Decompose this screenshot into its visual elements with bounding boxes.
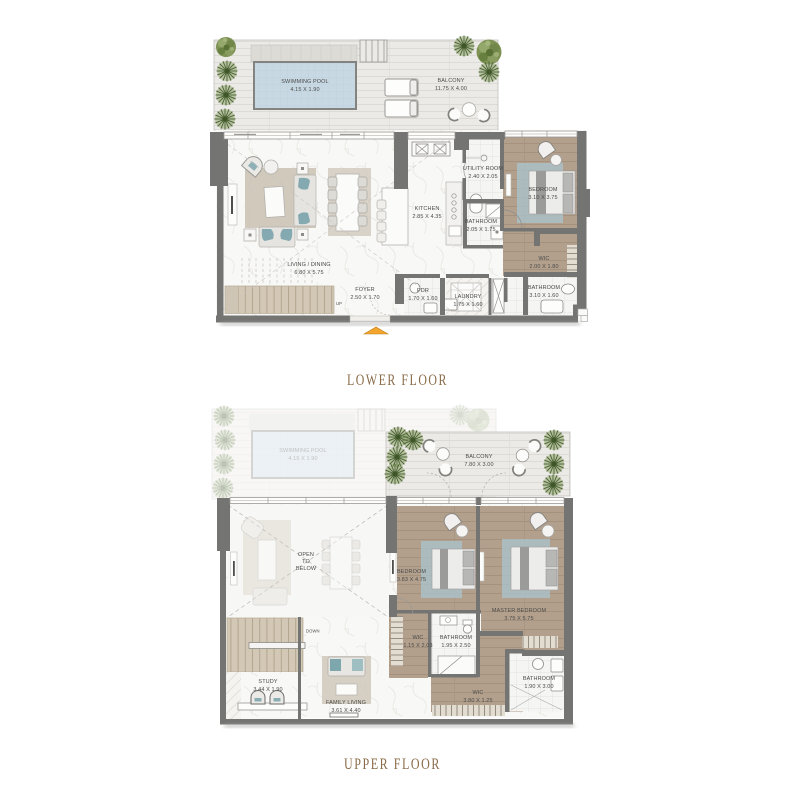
svg-text:2.40 X 2.05: 2.40 X 2.05: [468, 174, 497, 180]
svg-text:LOWER FLOOR: LOWER FLOOR: [347, 372, 448, 389]
svg-text:WIC: WIC: [413, 635, 424, 641]
svg-text:2.50 X 1.70: 2.50 X 1.70: [350, 295, 379, 301]
svg-text:BELOW: BELOW: [296, 566, 317, 572]
svg-text:11.75 X 4.00: 11.75 X 4.00: [435, 86, 467, 92]
svg-text:BALCONY: BALCONY: [438, 78, 465, 84]
svg-text:UPPER FLOOR: UPPER FLOOR: [344, 756, 441, 773]
svg-text:KITCHEN: KITCHEN: [415, 206, 440, 212]
svg-text:MASTER BEDROOM: MASTER BEDROOM: [492, 608, 547, 614]
svg-text:4.15 X 1.90: 4.15 X 1.90: [290, 87, 319, 93]
svg-text:1.70 X 1.60: 1.70 X 1.60: [408, 296, 437, 302]
svg-text:3.61 X 4.40: 3.61 X 4.40: [331, 708, 360, 714]
svg-text:1.90 X 3.00: 1.90 X 3.00: [524, 684, 553, 690]
svg-text:3.83 X 4.75: 3.83 X 4.75: [397, 577, 426, 583]
svg-text:DOWN: DOWN: [306, 629, 320, 634]
svg-text:2.85 X 4.35: 2.85 X 4.35: [412, 214, 441, 220]
svg-text:BEDROOM: BEDROOM: [397, 569, 426, 575]
svg-text:3.80 X 1.25: 3.80 X 1.25: [463, 698, 492, 704]
svg-text:1.75 X 1.60: 1.75 X 1.60: [453, 302, 482, 308]
svg-text:UTILITY ROOM: UTILITY ROOM: [463, 166, 504, 172]
svg-text:LAUNDRY: LAUNDRY: [455, 294, 482, 300]
svg-text:WIC: WIC: [539, 256, 550, 262]
svg-text:7.80 X 3.00: 7.80 X 3.00: [464, 462, 493, 468]
svg-text:6.80 X 5.75: 6.80 X 5.75: [294, 270, 323, 276]
svg-text:3.75 X 5.75: 3.75 X 5.75: [504, 616, 533, 622]
svg-text:WIC: WIC: [473, 690, 484, 696]
svg-text:TO: TO: [302, 559, 310, 565]
svg-text:OPEN: OPEN: [298, 552, 314, 558]
svg-text:SWIMMING POOL: SWIMMING POOL: [281, 79, 328, 85]
svg-text:BALCONY: BALCONY: [466, 454, 493, 460]
svg-text:BATHROOM: BATHROOM: [523, 676, 555, 682]
svg-text:3.10 X 1.60: 3.10 X 1.60: [529, 293, 558, 299]
svg-text:BATHROOM: BATHROOM: [440, 635, 472, 641]
svg-text:4.15 X 1.90: 4.15 X 1.90: [288, 456, 317, 462]
svg-text:UP: UP: [336, 301, 342, 306]
svg-text:STUDY: STUDY: [258, 679, 277, 685]
svg-text:1.95 X 2.50: 1.95 X 2.50: [441, 643, 470, 649]
svg-text:3.10 X 3.75: 3.10 X 3.75: [528, 195, 557, 201]
svg-text:FOYER: FOYER: [355, 287, 374, 293]
svg-text:BEDROOM: BEDROOM: [528, 187, 557, 193]
svg-text:FAMILY LIVING: FAMILY LIVING: [326, 700, 366, 706]
svg-text:BATHROOM: BATHROOM: [528, 285, 560, 291]
svg-text:1.15 X 2.03: 1.15 X 2.03: [403, 643, 432, 649]
svg-text:3.44 X 1.90: 3.44 X 1.90: [253, 687, 282, 693]
svg-text:2.05 X 1.75: 2.05 X 1.75: [466, 227, 495, 233]
svg-text:SWIMMING POOL: SWIMMING POOL: [279, 448, 326, 454]
svg-text:PDR: PDR: [417, 288, 429, 294]
svg-text:LIVING / DINING: LIVING / DINING: [287, 262, 330, 268]
svg-text:BATHROOM: BATHROOM: [465, 219, 497, 225]
svg-text:2.00 X 1.80: 2.00 X 1.80: [529, 264, 558, 270]
